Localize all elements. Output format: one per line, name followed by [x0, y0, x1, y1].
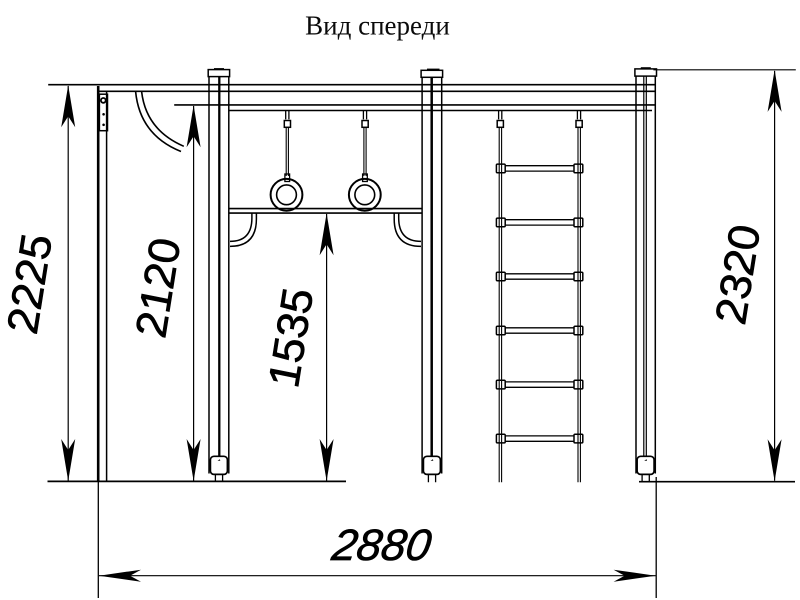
svg-text:2320: 2320	[706, 226, 770, 325]
svg-text:2880: 2880	[328, 521, 435, 570]
svg-text:2225: 2225	[0, 235, 62, 334]
svg-text:Вид спереди: Вид спереди	[305, 11, 450, 41]
svg-text:2120: 2120	[126, 239, 190, 338]
svg-text:1535: 1535	[259, 289, 323, 387]
